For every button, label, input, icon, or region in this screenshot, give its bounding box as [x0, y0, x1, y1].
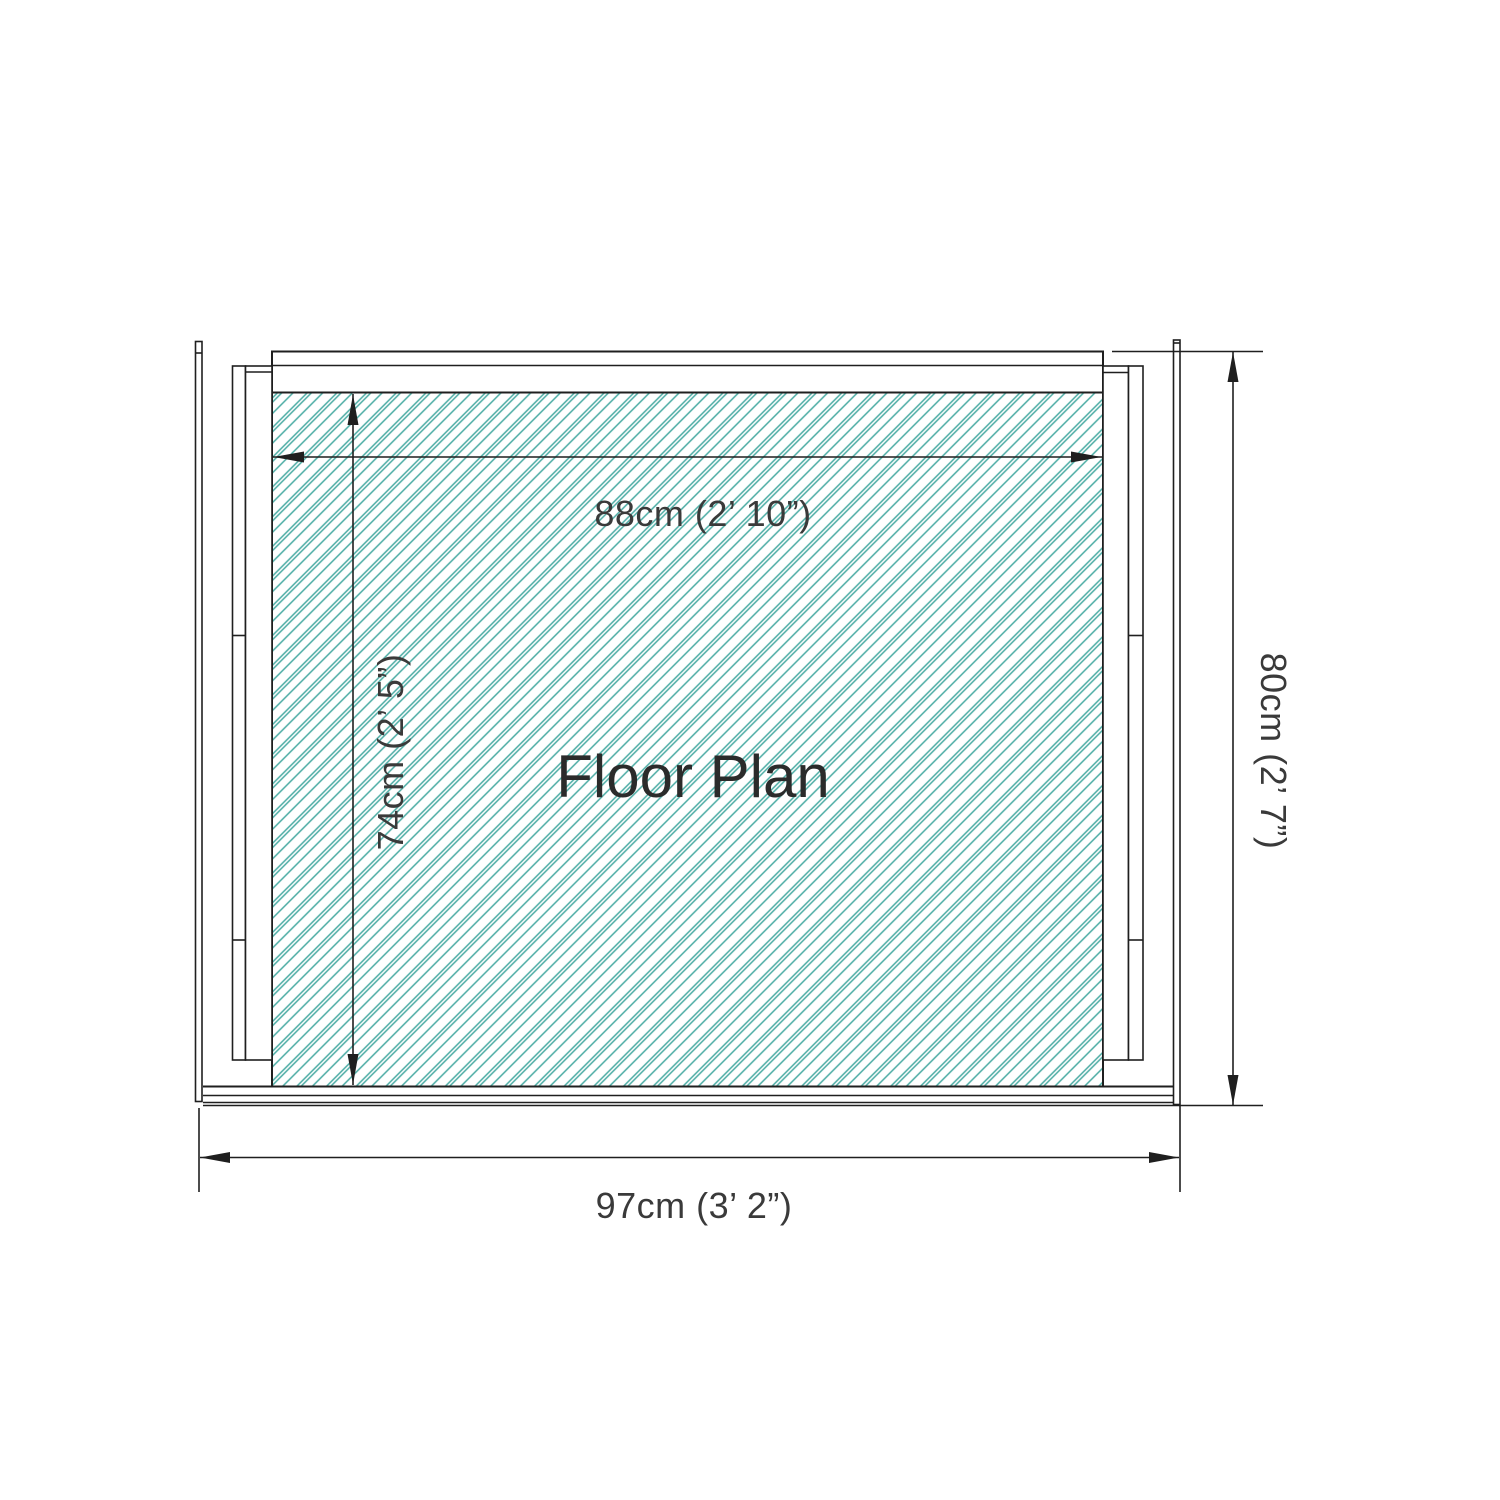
overall-width-label: 97cm (3’ 2”)	[596, 1185, 793, 1226]
interior-width-label: 88cm (2’ 10”)	[594, 493, 811, 534]
floor-plan-canvas: 88cm (2’ 10”) 74cm (2’ 5”) 97cm (3’ 2”) …	[0, 0, 1500, 1500]
interior-depth-label: 74cm (2’ 5”)	[370, 654, 411, 851]
wall-right-inner-strip	[1103, 366, 1129, 1060]
arrowhead-top	[1228, 352, 1239, 382]
roof-edge-left	[196, 342, 203, 1102]
wall-top-panel	[272, 352, 1103, 393]
floor-plan-drawing: 88cm (2’ 10”) 74cm (2’ 5”) 97cm (3’ 2”) …	[0, 0, 1500, 1500]
arrowhead-right	[1149, 1152, 1179, 1163]
wall-left-outer-strip	[233, 366, 246, 1060]
wall-bottom	[203, 1087, 1263, 1106]
wall-right	[1103, 366, 1143, 1060]
overall-depth-label: 80cm (2’ 7”)	[1253, 653, 1294, 850]
wall-left	[233, 366, 273, 1060]
wall-right-outer-strip	[1129, 366, 1144, 1060]
wall-top	[272, 352, 1103, 393]
roof-edge-right	[1174, 340, 1181, 1105]
arrowhead-left	[200, 1152, 230, 1163]
floor-plan-title: Floor Plan	[556, 743, 829, 810]
roof-edge-left-bar	[196, 342, 203, 1102]
wall-left-inner-strip	[246, 366, 273, 1060]
dimension-overall-width: 97cm (3’ 2”)	[199, 1106, 1180, 1227]
roof-edge-right-bar	[1174, 340, 1181, 1105]
arrowhead-bottom	[1228, 1075, 1239, 1105]
